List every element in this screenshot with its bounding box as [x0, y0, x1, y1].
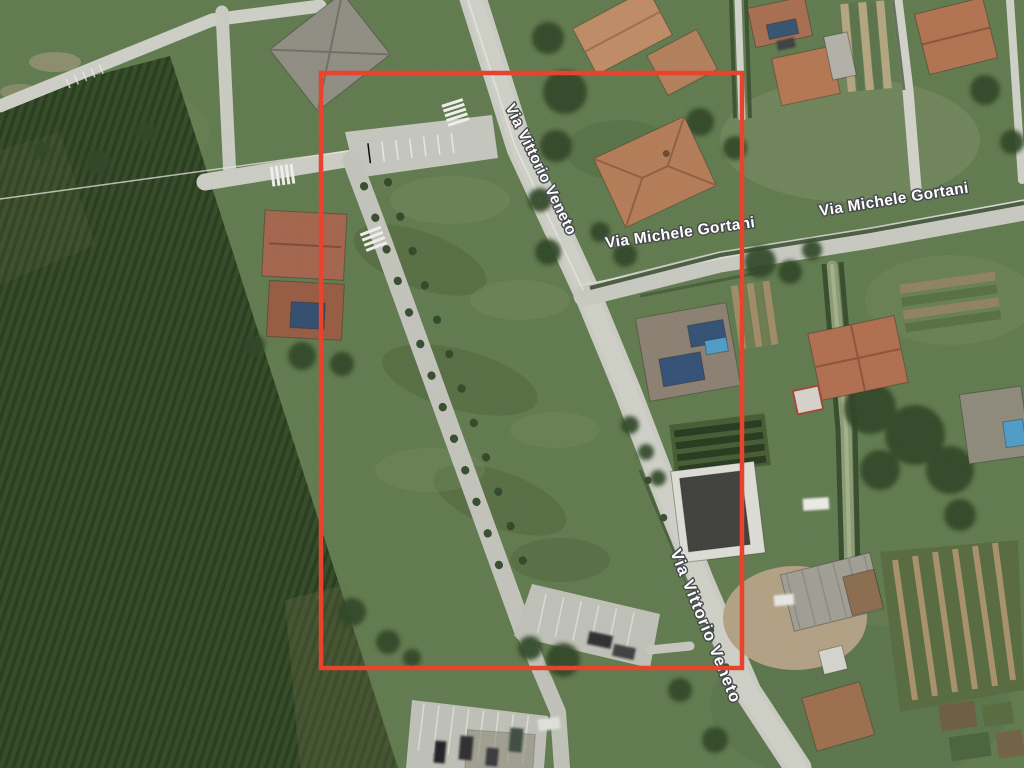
satellite-map[interactable]: Via Vittorio Veneto Via Michele Gortani …	[0, 0, 1024, 768]
satellite-image: Via Vittorio Veneto Via Michele Gortani …	[0, 0, 1024, 768]
